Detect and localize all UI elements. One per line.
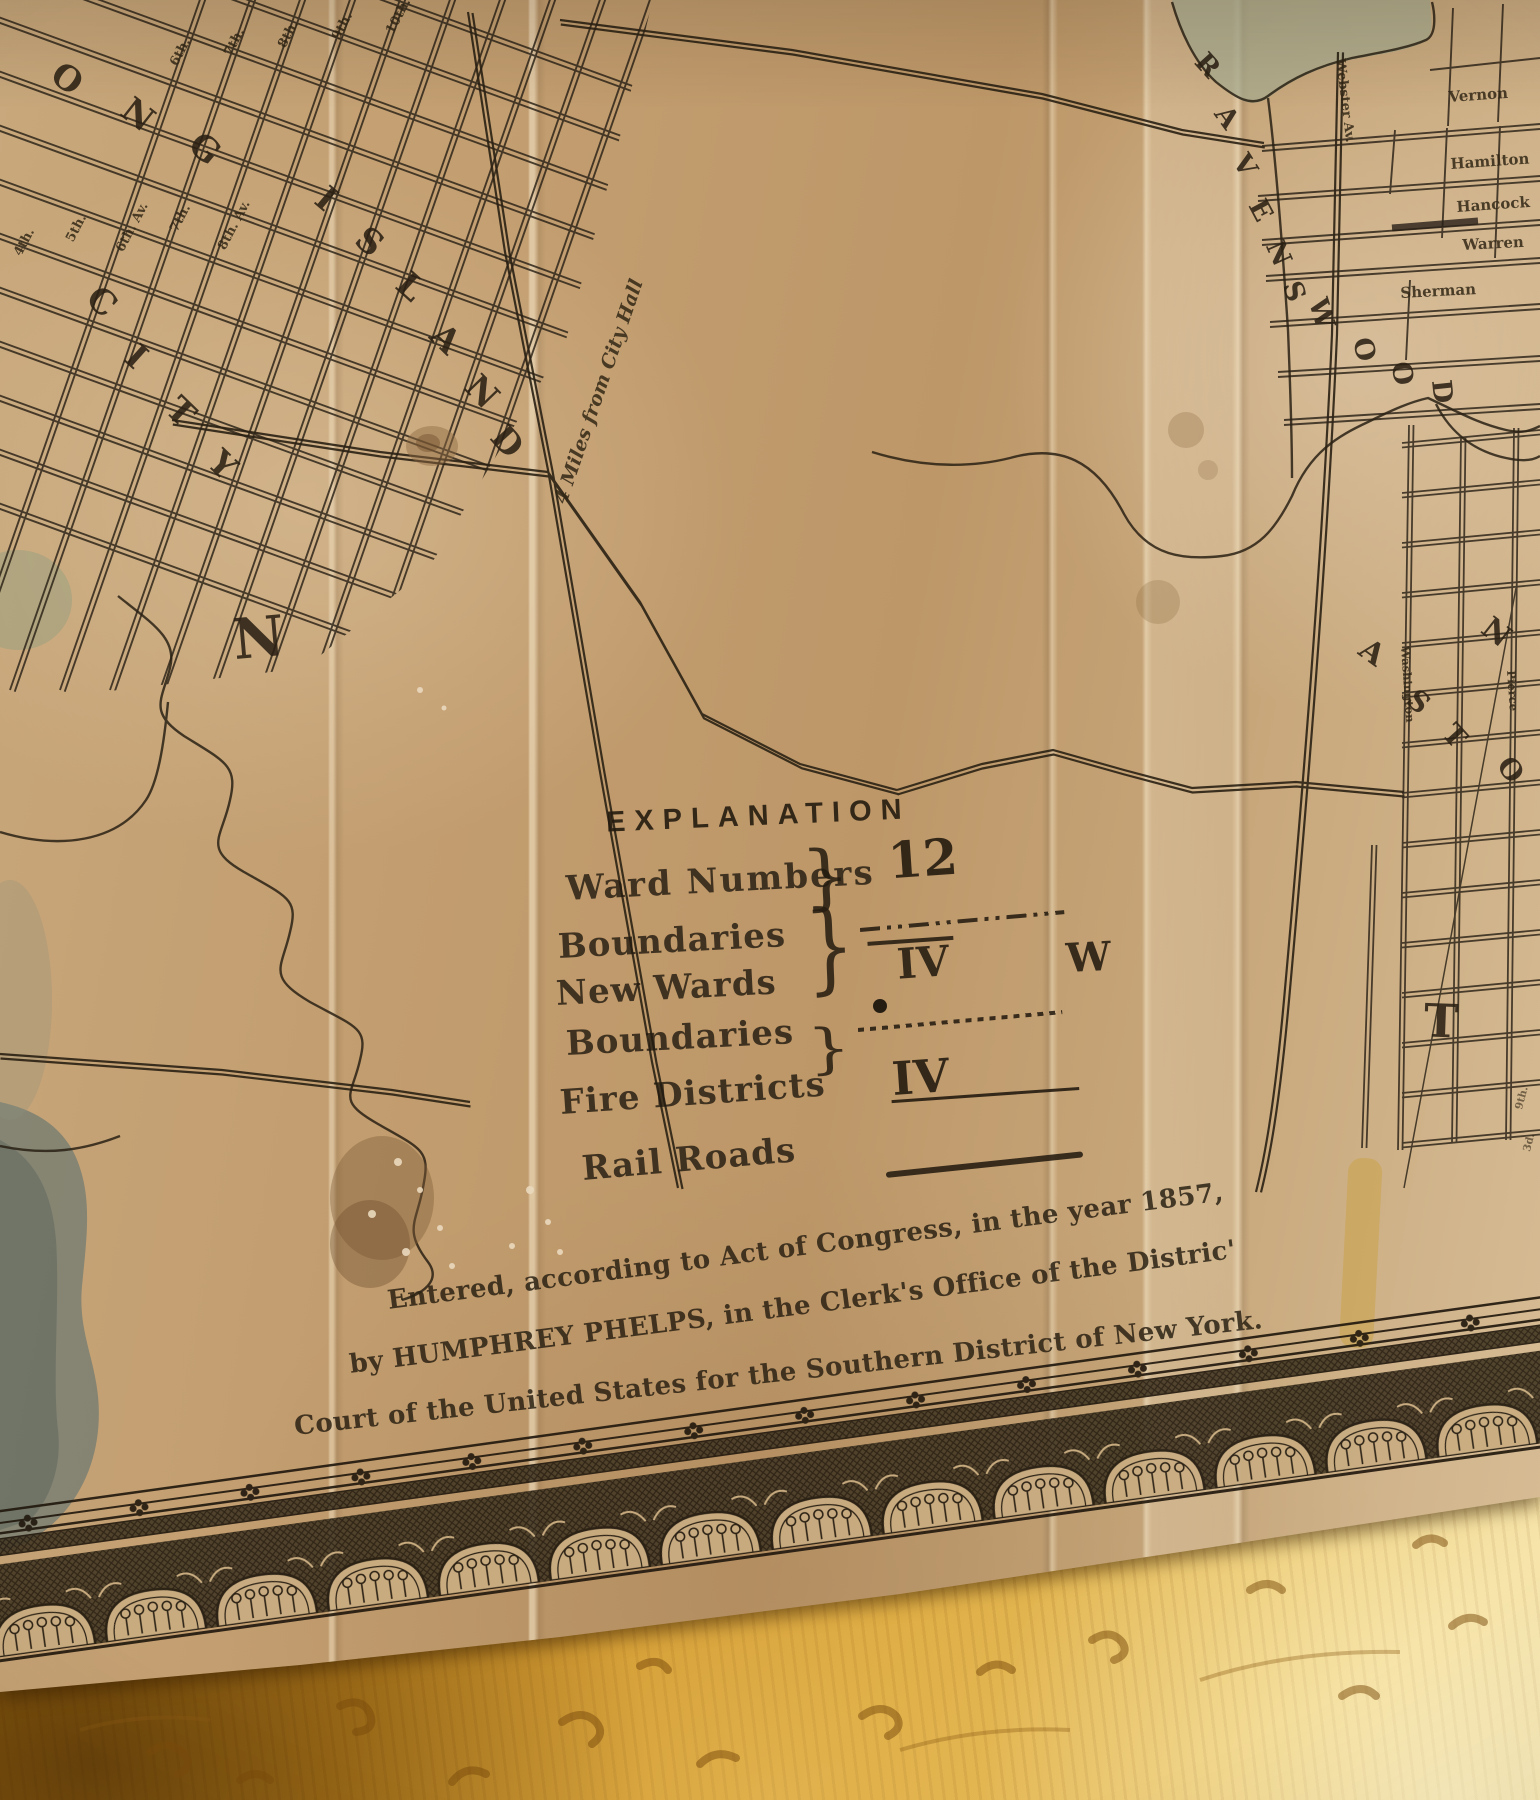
left-edge-wash (0, 880, 52, 1120)
legend-fire-district-numeral: IV (890, 1052, 950, 1102)
legend-ward-number-sample: 12 (886, 832, 959, 887)
compass-north-letter: N (231, 608, 287, 668)
street-label-vernon: Vernon (1448, 86, 1508, 105)
legend-brace: } (806, 1021, 852, 1077)
street-label-pierce: Pierce (1505, 670, 1519, 711)
place-letter-big-t: T (1423, 997, 1459, 1044)
legend-new-ward-numeral: IV (896, 940, 951, 986)
legend-brace: } (803, 896, 856, 998)
roads (0, 12, 1405, 1192)
road-webster-south (1256, 52, 1343, 1192)
astoria-grid (1362, 425, 1540, 1188)
place-letter-ravenswood: D (1427, 378, 1456, 404)
place-letter-ravenswood: O (1386, 360, 1417, 388)
map-sheet-wrap: O N G I S L A N D C I T Y R A V E N S W … (0, 0, 1540, 1800)
legend-w-letter: W (1065, 937, 1112, 979)
water-left-pond (0, 550, 72, 650)
framed-antique-map-photo: O N G I S L A N D C I T Y R A V E N S W … (0, 0, 1540, 1800)
street-label-sherman: Sherman (1400, 282, 1476, 301)
legend-label-new-wards: New Wards (555, 965, 777, 1011)
map-sheet: O N G I S L A N D C I T Y R A V E N S W … (0, 0, 1540, 1800)
street-label-warren: Warren (1462, 235, 1524, 253)
